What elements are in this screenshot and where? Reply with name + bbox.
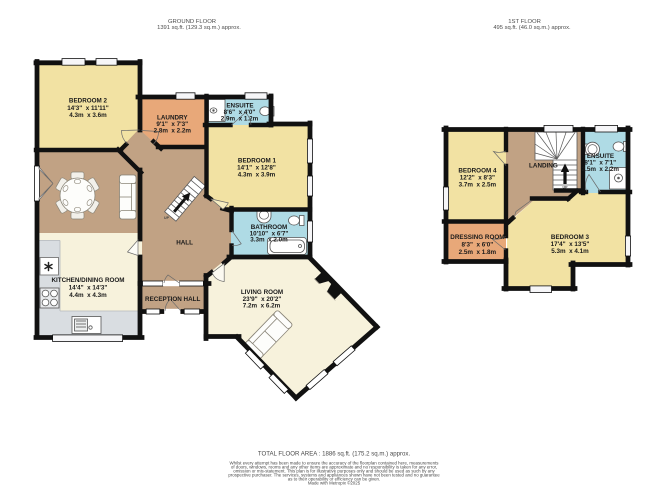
svg-text:3.3m x 2.0m: 3.3m x 2.0m [250, 237, 288, 244]
svg-text:TOTAL FLOOR AREA : 1886 sq.ft.: TOTAL FLOOR AREA : 1886 sq.ft. (175.2 sq… [258, 451, 411, 458]
svg-text:4.4m x 4.3m: 4.4m x 4.3m [69, 292, 107, 299]
svg-text:14'4" x 14'3": 14'4" x 14'3" [69, 285, 108, 292]
svg-text:495 sq.ft. (46.0 sq.m.) approx: 495 sq.ft. (46.0 sq.m.) approx. [493, 25, 571, 31]
svg-text:8'3" x 6'0": 8'3" x 6'0" [462, 242, 494, 249]
svg-text:Made with Metropix ©2025: Made with Metropix ©2025 [308, 481, 361, 486]
svg-text:4.3m x 3.9m: 4.3m x 3.9m [238, 172, 276, 179]
svg-text:DRESSING ROOM: DRESSING ROOM [450, 234, 504, 241]
svg-text:2.8m x 2.2m: 2.8m x 2.2m [154, 128, 192, 135]
svg-text:4.3m x 3.6m: 4.3m x 3.6m [69, 112, 107, 119]
svg-text:BEDROOM 2: BEDROOM 2 [69, 98, 108, 105]
svg-text:1391 sq.ft. (129.3 sq.m.) appr: 1391 sq.ft. (129.3 sq.m.) approx. [157, 25, 241, 31]
svg-text:KITCHEN/DINING ROOM: KITCHEN/DINING ROOM [51, 277, 124, 284]
svg-text:BEDROOM 4: BEDROOM 4 [458, 167, 497, 174]
svg-text:14'3" x 11'11": 14'3" x 11'11" [67, 105, 109, 112]
svg-text:LANDING: LANDING [529, 163, 558, 170]
svg-text:RECEPTION HALL: RECEPTION HALL [145, 296, 200, 303]
svg-text:HALL: HALL [176, 240, 193, 247]
svg-text:7.2m x 6.2m: 7.2m x 6.2m [243, 302, 281, 309]
svg-text:2.5m x 2.2m: 2.5m x 2.2m [582, 166, 620, 173]
svg-text:2.5m x 1.8m: 2.5m x 1.8m [459, 249, 497, 256]
svg-text:2.9m x 1.2m: 2.9m x 1.2m [221, 115, 259, 122]
svg-text:5.3m x 4.1m: 5.3m x 4.1m [551, 248, 589, 255]
svg-text:BEDROOM 1: BEDROOM 1 [238, 158, 277, 165]
svg-text:BEDROOM 3: BEDROOM 3 [551, 234, 590, 241]
svg-text:UP: UP [164, 216, 170, 220]
svg-text:14'1" x 12'8": 14'1" x 12'8" [237, 165, 276, 172]
svg-text:3.7m x 2.5m: 3.7m x 2.5m [459, 182, 497, 189]
